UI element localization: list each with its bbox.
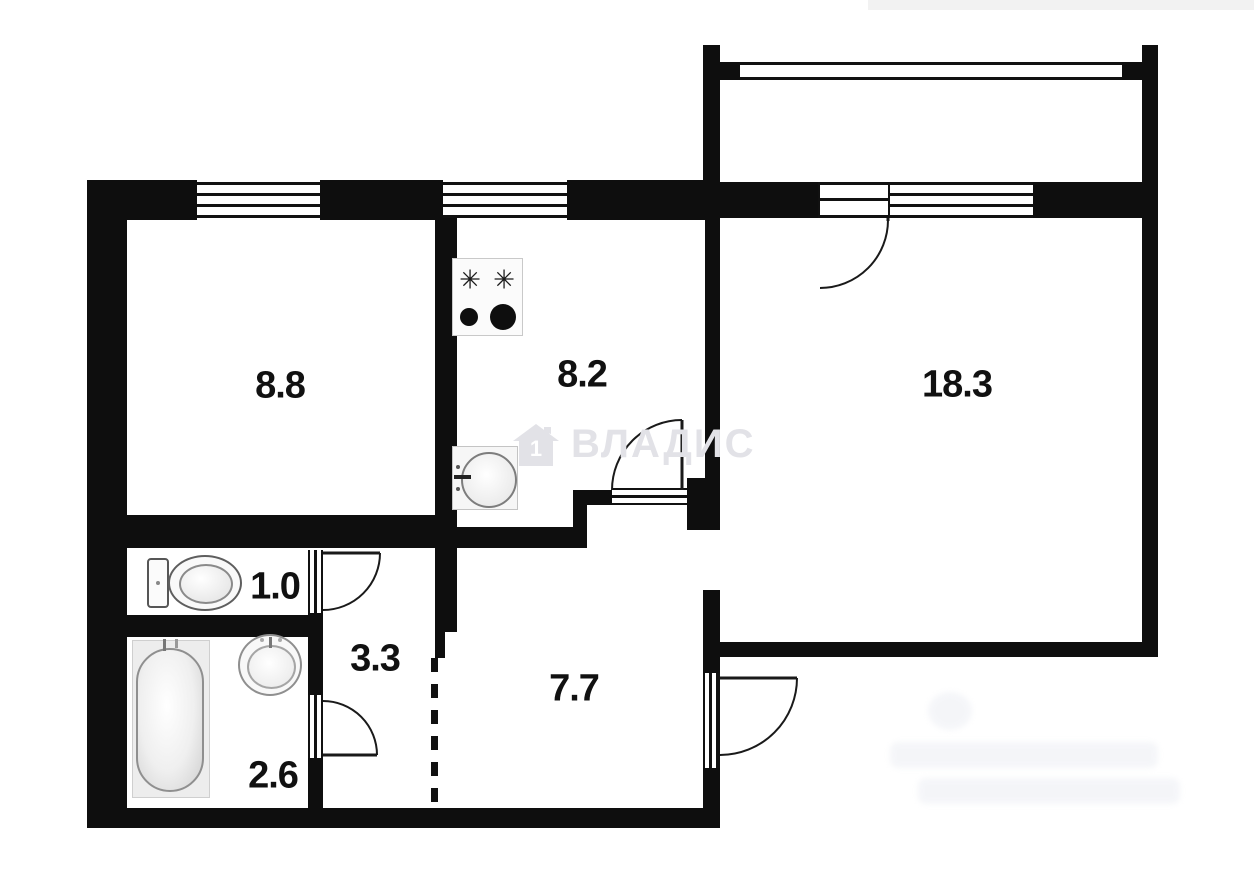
room-label-bathroom: 2.6 — [248, 755, 298, 798]
window-bedroom — [197, 182, 320, 218]
house-icon: 1 — [513, 424, 559, 466]
stove-burner-icon: ✳ — [459, 265, 481, 296]
wall-bedroom-bottom — [87, 515, 457, 548]
bathroom-sink-knob — [278, 638, 282, 642]
bathtub-faucet — [163, 639, 166, 651]
toilet-bowl — [168, 555, 242, 611]
balcony-left-stub — [703, 45, 720, 185]
floor-plan: ✳ ✳ 8.8 8.2 18.3 1.0 3.3 2.6 7.7 — [0, 0, 1254, 883]
balcony-rail-cap-right — [1122, 62, 1142, 80]
stove-burner-dot — [460, 308, 478, 326]
wall-top-seg2 — [320, 180, 443, 220]
wall-corridor-right — [435, 548, 457, 632]
scan-artifact — [868, 0, 1254, 10]
wall-bottom-outer — [87, 808, 720, 828]
house-icon-digit: 1 — [513, 436, 559, 462]
kitchen-door-jamb — [612, 488, 687, 505]
room-label-living: 18.3 — [922, 364, 992, 407]
entrance-door-jamb — [703, 673, 720, 768]
kitchen-sink-faucet — [454, 475, 471, 479]
toilet-tank — [147, 558, 169, 608]
entrance-door-arc — [720, 678, 797, 755]
bath-door-arc — [323, 701, 377, 755]
bathroom-sink-knob — [260, 638, 264, 642]
stove-burner-dot — [490, 304, 516, 330]
bathroom-sink-basin — [247, 645, 296, 689]
room-label-kitchen: 8.2 — [557, 354, 607, 397]
wall-left-outer — [87, 180, 127, 828]
stove: ✳ ✳ — [452, 258, 523, 336]
balcony-door-sill — [818, 182, 890, 218]
wall-living-bottom — [717, 642, 1158, 657]
toilet-bowl-inner — [179, 564, 233, 604]
room-label-hall: 7.7 — [549, 668, 599, 711]
wall-partition-mid — [308, 613, 323, 695]
balcony-railing — [720, 62, 1142, 80]
kitchen-sink-knob — [456, 487, 460, 491]
bathtub-faucet — [175, 639, 178, 648]
faint-watermark — [890, 690, 1200, 825]
wall-living-top-seg1 — [703, 182, 820, 218]
kitchen-sink — [452, 446, 518, 510]
wall-kitchen-bottom-b — [587, 490, 612, 505]
wall-hall-living — [703, 590, 720, 673]
wall-wc-bath — [125, 615, 323, 637]
wall-living-right — [1142, 45, 1158, 657]
balcony-window — [890, 182, 1033, 218]
kitchen-sink-basin — [461, 452, 517, 508]
balcony-rail-cap-left — [720, 62, 740, 80]
wc-door-arc — [323, 553, 380, 610]
wc-door-jamb — [308, 550, 323, 613]
opening-dashed-line — [431, 658, 438, 808]
window-kitchen — [443, 182, 567, 218]
bath-door-jamb — [308, 695, 323, 758]
bathroom-sink — [238, 634, 302, 696]
watermark: 1 ВЛАДИС — [513, 422, 755, 467]
room-label-corridor: 3.3 — [350, 638, 400, 681]
stove-burner-icon: ✳ — [493, 265, 515, 296]
wall-living-top-seg2 — [1033, 182, 1142, 218]
bathtub — [136, 648, 204, 792]
bathtub-area — [132, 640, 210, 798]
room-label-wc: 1.0 — [250, 566, 300, 609]
balcony-door-arc — [820, 220, 888, 288]
watermark-text: ВЛАДИС — [571, 422, 755, 467]
wall-top-seg3 — [567, 180, 720, 220]
room-label-bedroom: 8.8 — [255, 365, 305, 408]
wall-below-entrance — [703, 768, 720, 828]
bathroom-sink-faucet — [269, 637, 272, 648]
toilet-flush-button — [156, 581, 160, 585]
wall-kitchen-bottom — [435, 527, 587, 548]
wall-partition-low — [308, 758, 323, 808]
kitchen-sink-knob — [456, 465, 460, 469]
wall-corridor-right-step — [435, 630, 445, 658]
wall-kitchen-step — [573, 490, 587, 548]
